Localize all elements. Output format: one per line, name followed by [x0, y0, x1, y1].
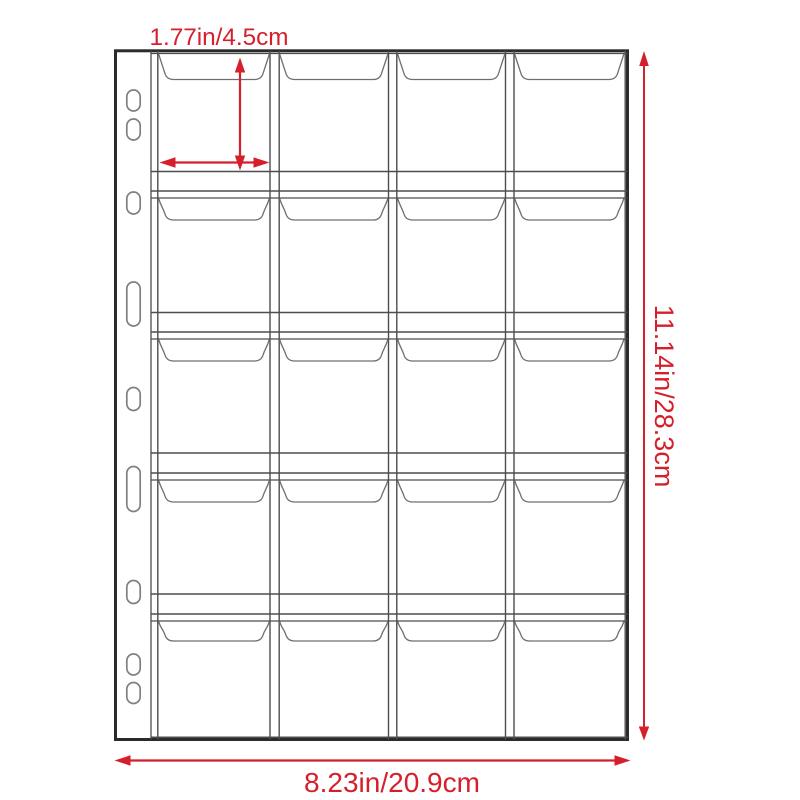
svg-text:8.23in/20.9cm: 8.23in/20.9cm — [304, 767, 480, 798]
svg-text:11.14in/28.3cm: 11.14in/28.3cm — [649, 305, 679, 488]
svg-text:1.77in/4.5cm: 1.77in/4.5cm — [149, 24, 288, 51]
